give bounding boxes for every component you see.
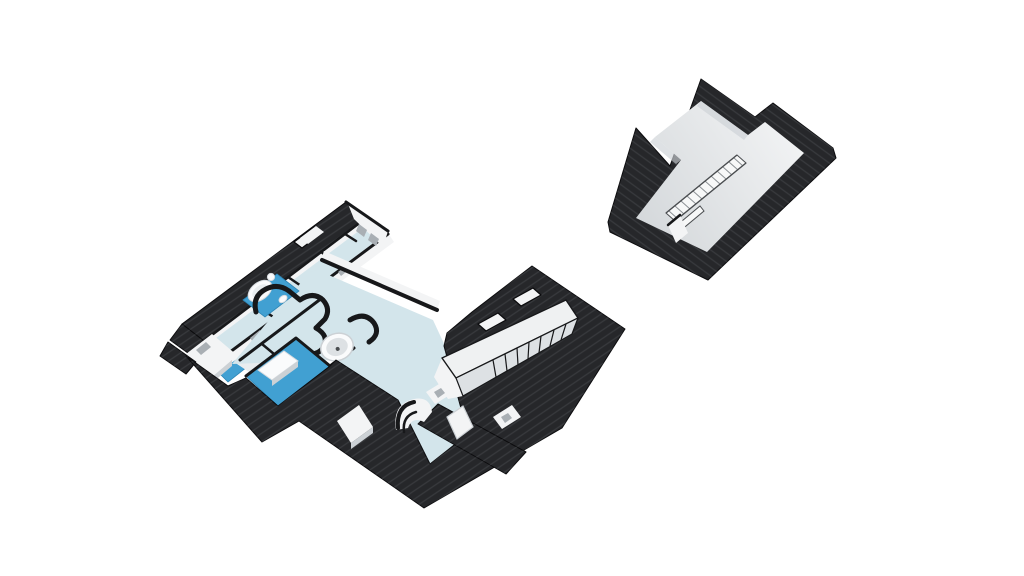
building-a: [160, 202, 625, 508]
building-b: [608, 79, 836, 280]
toilet: [267, 273, 274, 280]
floorplan-canvas: [0, 0, 1024, 576]
page: { "scene": { "background": "#ffffff", "r…: [0, 0, 1024, 576]
